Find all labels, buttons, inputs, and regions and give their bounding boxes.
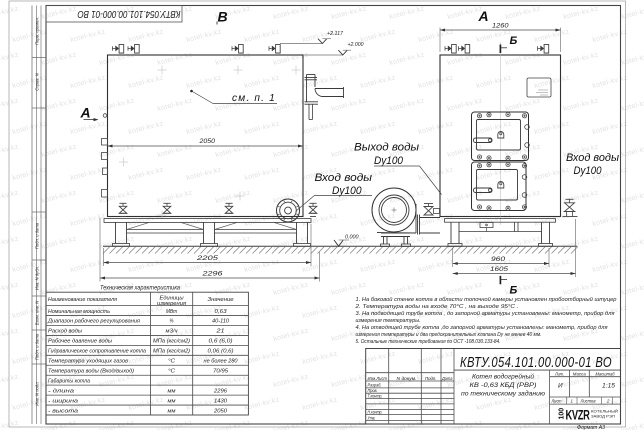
- svg-text:Изм.Лист: Изм.Лист: [368, 376, 388, 381]
- svg-text:960: 960: [491, 257, 506, 263]
- svg-text:Диапазон рабочего регулировани: Диапазон рабочего регулирования: [47, 319, 140, 325]
- svg-text:4. На отводящей трубе котла ,: 4. На отводящей трубе котла ,до запорной…: [356, 324, 608, 331]
- svg-text:3. На подводящей трубе котла: 3. На подводящей трубе котла , до запорн…: [356, 310, 615, 317]
- svg-text:Dy100: Dy100: [374, 155, 404, 167]
- svg-text:измерения температуры.: измерения температуры.: [356, 318, 421, 324]
- svg-text:Инв. N подл.: Инв. N подл.: [35, 381, 40, 405]
- svg-text:100: 100: [559, 408, 566, 420]
- svg-text:Температура уходящих газов: Температура уходящих газов: [48, 359, 128, 365]
- svg-text:Пров.: Пров.: [368, 388, 378, 393]
- svg-text:Масштаб: Масштаб: [596, 371, 616, 376]
- svg-text:%: %: [170, 319, 174, 325]
- svg-text:Б: Б: [510, 35, 518, 47]
- svg-text:Листов: Листов: [580, 399, 597, 404]
- svg-text:Вход воды: Вход воды: [315, 172, 373, 184]
- svg-text:по техническому заданию: по техническому заданию: [461, 389, 545, 397]
- svg-text:2. Температура воды на входе: 2. Температура воды на входе 70°С , на в…: [354, 304, 518, 310]
- svg-text:1. На боковой стенке котла в: 1. На боковой стенке котла в области топ…: [356, 296, 617, 303]
- svg-text:Рабочее давление воды: Рабочее давление воды: [48, 339, 112, 345]
- svg-text:2205: 2205: [195, 256, 219, 262]
- svg-text:КВТУ.054.101.00.000-01 ВО: КВТУ.054.101.00.000-01 ВО: [77, 8, 180, 19]
- svg-text:м3/ч: м3/ч: [166, 329, 178, 335]
- svg-text:21: 21: [215, 329, 224, 335]
- svg-text:Инв. N дубл.: Инв. N дубл.: [35, 266, 40, 290]
- svg-text:Б: Б: [510, 285, 518, 297]
- svg-text:Подп.: Подп.: [425, 376, 437, 381]
- svg-text:мм: мм: [168, 398, 176, 404]
- svg-text:ЗАВОД РЭП: ЗАВОД РЭП: [591, 414, 615, 419]
- svg-text:- ширина: - ширина: [48, 398, 78, 404]
- svg-text:КВТУ.054.101.00.000-01 ВО: КВТУ.054.101.00.000-01 ВО: [460, 355, 612, 371]
- svg-text:N докум.: N докум.: [397, 376, 417, 381]
- svg-text:Справ. N: Справ. N: [35, 72, 40, 90]
- svg-text:КВ -0,63 КБД (РВР): КВ -0,63 КБД (РВР): [470, 382, 537, 389]
- svg-text:Подп. и дата: Подп. и дата: [35, 333, 40, 360]
- svg-text:1430: 1430: [214, 398, 227, 404]
- svg-text:5. Остальные технические треб: 5. Остальные технические требования по О…: [356, 339, 501, 345]
- svg-text:0,6 (6,0): 0,6 (6,0): [209, 339, 233, 345]
- svg-text:Масса: Масса: [573, 371, 587, 376]
- svg-text:Подп. и дата: Подп. и дата: [35, 222, 40, 249]
- svg-text:°С: °С: [168, 368, 175, 374]
- svg-text:°С: °С: [168, 359, 175, 365]
- svg-text:0.000: 0.000: [345, 234, 359, 240]
- svg-text:мм: мм: [168, 388, 176, 394]
- svg-text:мм: мм: [168, 408, 176, 414]
- svg-text:см. п. 1: см. п. 1: [232, 93, 276, 104]
- svg-text:измерения температуры и два пр: измерения температуры и два предохраните…: [356, 332, 542, 338]
- svg-text:Разраб.: Разраб.: [368, 383, 382, 388]
- svg-text:И: И: [558, 382, 563, 389]
- svg-text:Температура воды (Вход/выход): Температура воды (Вход/выход): [48, 368, 134, 374]
- svg-text:Т.контр.: Т.контр.: [368, 394, 383, 399]
- svg-text:Дата: Дата: [441, 376, 453, 381]
- svg-text:1:15: 1:15: [602, 382, 615, 389]
- svg-text:Взам. инв. N: Взам. инв. N: [35, 300, 40, 325]
- svg-text:Габариты котла: Габариты котла: [48, 378, 90, 384]
- svg-text:Лист: Лист: [551, 399, 562, 404]
- svg-text:Техническая характеристика: Техническая характеристика: [100, 285, 181, 291]
- svg-text:А: А: [478, 8, 489, 24]
- svg-text:Формат А3: Формат А3: [577, 425, 605, 430]
- svg-text:1260: 1260: [492, 24, 509, 30]
- svg-text:Номинальная мощность: Номинальная мощность: [48, 309, 110, 315]
- svg-text:МВт: МВт: [166, 309, 178, 315]
- svg-text:А: А: [80, 105, 91, 121]
- svg-text:- высота: - высота: [48, 408, 78, 414]
- svg-text:Dy100: Dy100: [332, 185, 362, 197]
- svg-text:70/95: 70/95: [213, 368, 228, 374]
- svg-text:Выход воды: Выход воды: [354, 142, 419, 154]
- svg-text:Лит.: Лит.: [554, 371, 564, 376]
- svg-text:2050: 2050: [213, 408, 227, 414]
- svg-text:KVZR: KVZR: [566, 408, 591, 423]
- svg-text:1605: 1605: [490, 267, 509, 273]
- svg-text:Вход воды: Вход воды: [566, 152, 619, 164]
- svg-text:МПа (кгс/см2): МПа (кгс/см2): [153, 349, 190, 355]
- svg-text:не более 280: не более 280: [204, 359, 238, 365]
- svg-text:0,63: 0,63: [215, 309, 227, 315]
- svg-text:МПа (кгс/см2): МПа (кгс/см2): [153, 339, 190, 345]
- svg-text:В: В: [218, 9, 228, 25]
- svg-text:Котел водогрейный: Котел водогрейный: [472, 373, 535, 381]
- svg-text:- длина: - длина: [48, 388, 74, 394]
- svg-text:Dy100: Dy100: [574, 165, 603, 177]
- svg-text:Гидравлическое сопротивление к: Гидравлическое сопротивление котла: [48, 349, 146, 355]
- svg-text:2296: 2296: [213, 388, 227, 394]
- svg-text:измерения: измерения: [157, 301, 186, 307]
- svg-text:40-110: 40-110: [212, 319, 229, 325]
- svg-text:0,06 (0,6): 0,06 (0,6): [208, 349, 234, 355]
- svg-text:+2.000: +2.000: [348, 42, 364, 48]
- svg-text:2296: 2296: [201, 272, 223, 278]
- svg-text:Утв.: Утв.: [368, 416, 376, 421]
- svg-text:Значение: Значение: [208, 297, 234, 303]
- svg-text:+2.117: +2.117: [327, 31, 344, 37]
- svg-text:Наименование показателя: Наименование показателя: [48, 297, 117, 303]
- svg-text:Перв. примен.: Перв. примен.: [35, 17, 40, 45]
- svg-text:Расход воды: Расход воды: [48, 329, 82, 335]
- svg-text:2050: 2050: [198, 139, 215, 145]
- svg-text:Н.контр.: Н.контр.: [368, 410, 383, 415]
